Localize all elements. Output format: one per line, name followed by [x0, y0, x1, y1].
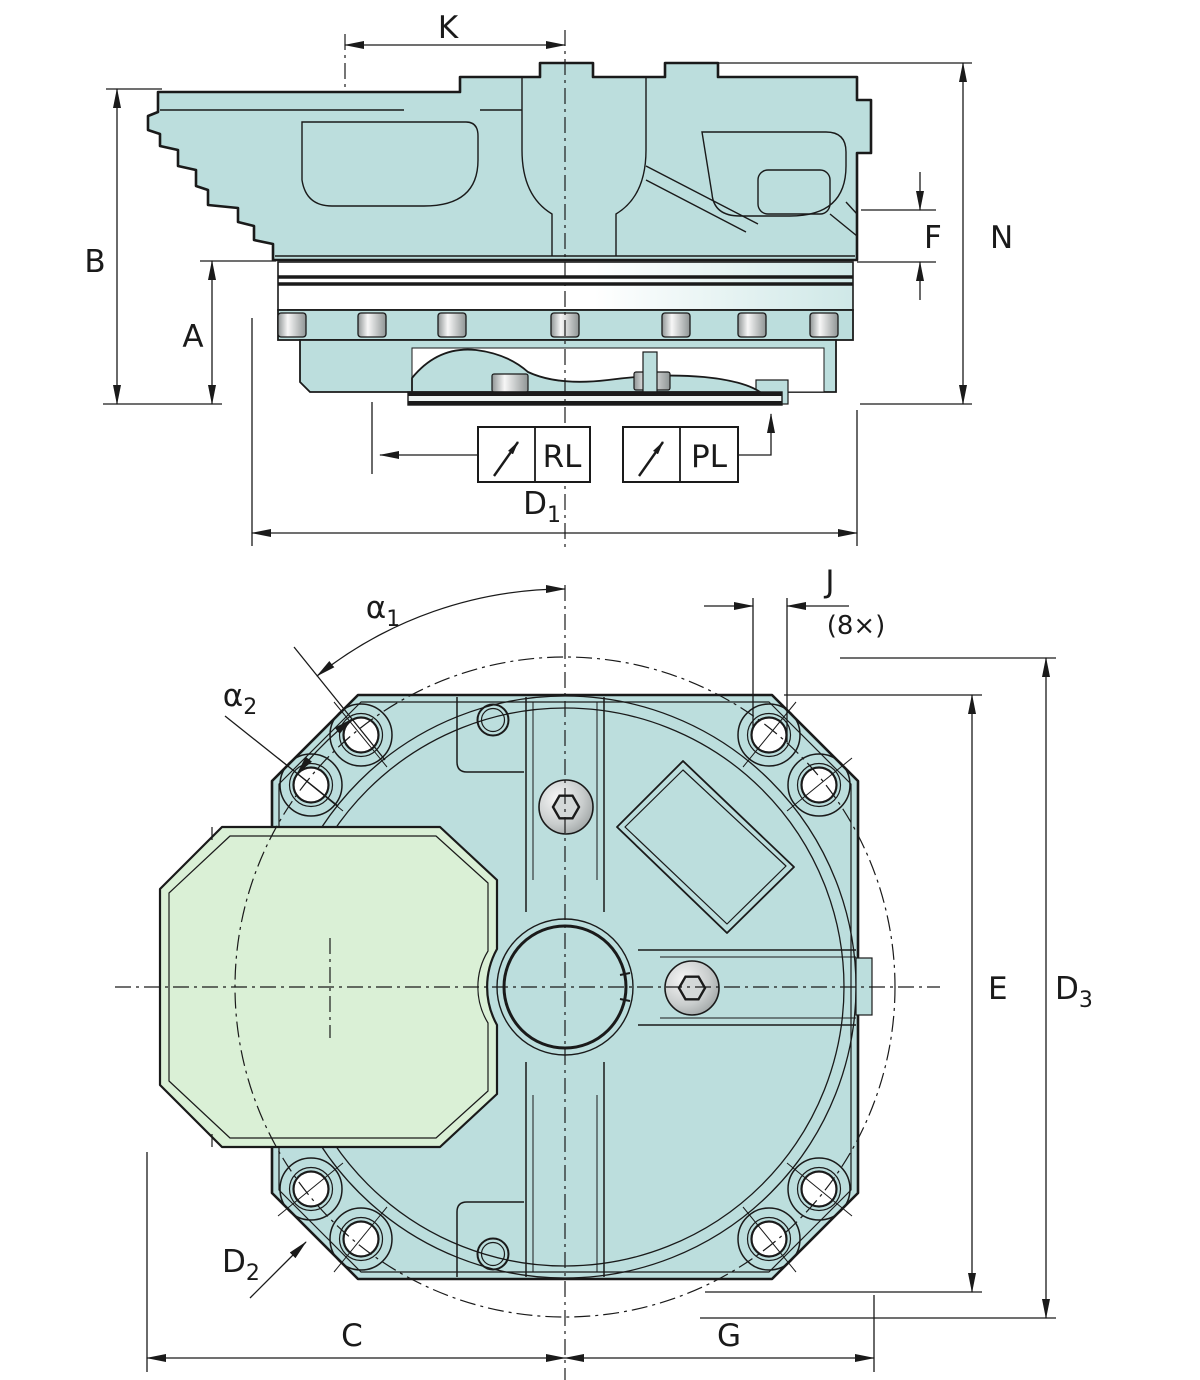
- callout-RL: RL: [372, 402, 590, 482]
- dim-label-C: C: [341, 1318, 363, 1354]
- technical-drawing: K B A F N: [0, 0, 1200, 1380]
- plan-view: α1 α2 J (8×) E D3: [115, 564, 1093, 1380]
- hex-socket-icon: [553, 796, 579, 819]
- side-view: K B A F N: [84, 10, 1013, 548]
- dim-label-E: E: [988, 971, 1008, 1007]
- base-plate-band-top: [408, 392, 782, 396]
- dim-label-D3: D3: [1055, 971, 1093, 1013]
- hex-screw-right: [665, 961, 719, 1015]
- dim-D2: D2: [222, 1242, 306, 1298]
- base-plate-band-bottom: [408, 401, 782, 405]
- hex-socket-icon: [679, 977, 705, 1000]
- hex-screw-top: [539, 780, 593, 834]
- dim-label-N: N: [990, 220, 1013, 256]
- bolt-row: [278, 313, 838, 337]
- cam-follower: [492, 374, 528, 392]
- dim-F: F: [857, 172, 942, 300]
- callout-label-PL: PL: [691, 439, 728, 475]
- dim-K: K: [345, 10, 565, 46]
- dim-label-G: G: [717, 1318, 741, 1354]
- cam-post: [643, 352, 657, 392]
- dim-label-K: K: [438, 10, 459, 46]
- dim-label-alpha1: α1: [366, 590, 400, 632]
- drawing-page: K B A F N: [0, 0, 1200, 1380]
- dim-label-D2: D2: [222, 1244, 260, 1286]
- housing-body: [148, 63, 871, 260]
- dim-label-J-count: (8×): [827, 611, 886, 641]
- callout-label-RL: RL: [543, 439, 583, 475]
- dim-G: G: [565, 1295, 874, 1372]
- dim-label-A: A: [182, 319, 203, 355]
- dim-A: A: [182, 261, 276, 404]
- dim-label-F: F: [924, 220, 942, 256]
- dim-label-B: B: [84, 244, 105, 280]
- dim-label-alpha2: α2: [223, 678, 257, 720]
- callout-PL: PL: [623, 414, 771, 482]
- dim-label-J: J: [823, 564, 834, 600]
- dim-label-D1: D1: [523, 486, 561, 528]
